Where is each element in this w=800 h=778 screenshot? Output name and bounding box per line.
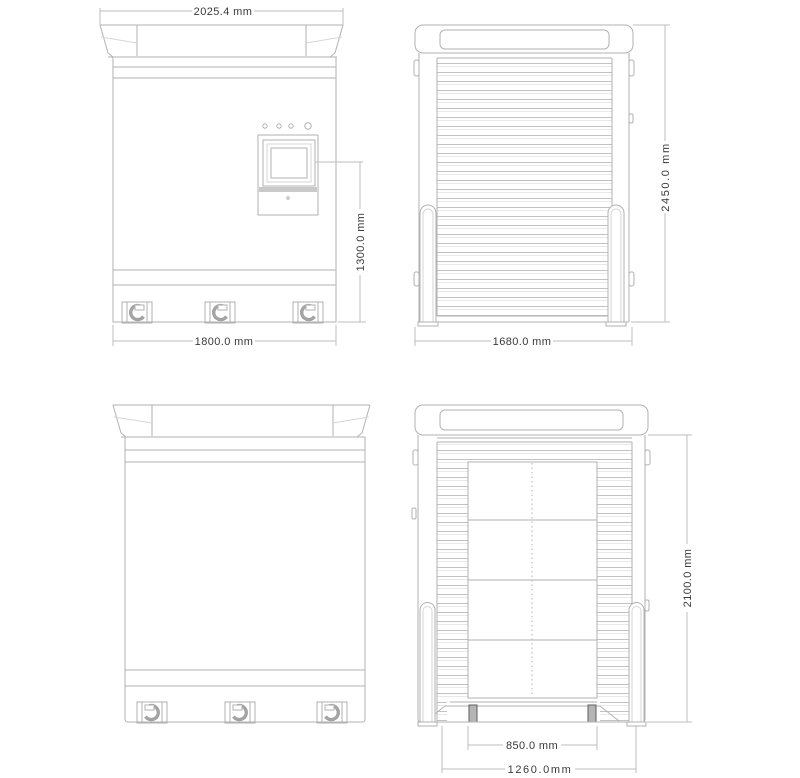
dimension-label-screen-height: 1300.0 mm [355, 213, 367, 272]
drawing-sheet: 2025.4 mm [0, 0, 800, 778]
panel-band [259, 187, 317, 192]
dimension-label-total-height: 2450.0 mm [660, 142, 672, 211]
side-hinge [413, 450, 418, 465]
roof-cap [100, 25, 343, 57]
dimension-platform-width: 850.0 mm [468, 726, 597, 752]
technical-drawing-canvas: 2025.4 mm [0, 0, 800, 778]
indicator-lights [263, 123, 311, 129]
panel-button [287, 197, 289, 199]
side-hinge [414, 272, 419, 286]
caster-wheels [122, 302, 323, 323]
caster-wheel [122, 302, 152, 323]
roller-shutter [437, 58, 612, 316]
dimension-screen-height: 1300.0 mm [315, 162, 367, 322]
roof-cap-side-open [415, 405, 648, 435]
caster-wheel [293, 302, 323, 323]
caster-wheel [317, 702, 347, 723]
caster-wheel [137, 702, 167, 723]
dimension-top-width: 2025.4 mm [100, 4, 343, 25]
caster-wheels-rear [137, 702, 347, 723]
dimension-label-side-base-width: 1680.0 mm [493, 336, 552, 348]
side-hinge [629, 60, 634, 76]
side-latch [412, 508, 416, 519]
side-hinge [414, 60, 419, 76]
caster-wheel [225, 702, 255, 723]
roof-cap-side [415, 25, 633, 53]
caster-wheel [205, 302, 235, 323]
roof-cap-rear [113, 405, 370, 437]
dimension-label-base-width: 1800.0 mm [195, 336, 254, 348]
cabinet-body-rear [125, 437, 365, 722]
dimension-body-height: 2100.0 mm [647, 435, 694, 722]
rear-view-drawing [113, 405, 370, 723]
side-latch [629, 114, 633, 123]
dimension-label-top-width: 2025.4 mm [194, 6, 253, 18]
front-view-drawing: 2025.4 mm [100, 4, 367, 348]
dimension-label-platform-width: 850.0 mm [506, 740, 558, 752]
side-view-closed-drawing: 1680.0 mm 2450.0 mm [414, 25, 672, 348]
touchscreen [271, 148, 307, 178]
side-hinge [629, 272, 634, 286]
side-view-open-drawing: 850.0 mm 1260.0mm 2100.0 mm [412, 405, 694, 776]
loading-platform [426, 699, 619, 722]
dimension-total-height: 2450.0 mm [631, 25, 672, 322]
dimension-label-ramp-width: 1260.0mm [508, 764, 573, 776]
platform-post-right [588, 705, 596, 722]
cargo-opening [468, 462, 597, 698]
guide-rail-left [420, 603, 435, 723]
guide-rail-right [608, 205, 624, 322]
guide-rail-right [629, 603, 644, 723]
platform-post-left [469, 705, 477, 722]
dimension-label-body-height: 2100.0 mm [682, 549, 694, 608]
dimension-side-base-width: 1680.0 mm [415, 327, 632, 348]
control-panel [258, 135, 318, 215]
side-hinge [645, 450, 650, 465]
side-latch [645, 600, 649, 611]
guide-rail-left [420, 205, 436, 322]
dimension-base-width: 1800.0 mm [113, 325, 336, 348]
